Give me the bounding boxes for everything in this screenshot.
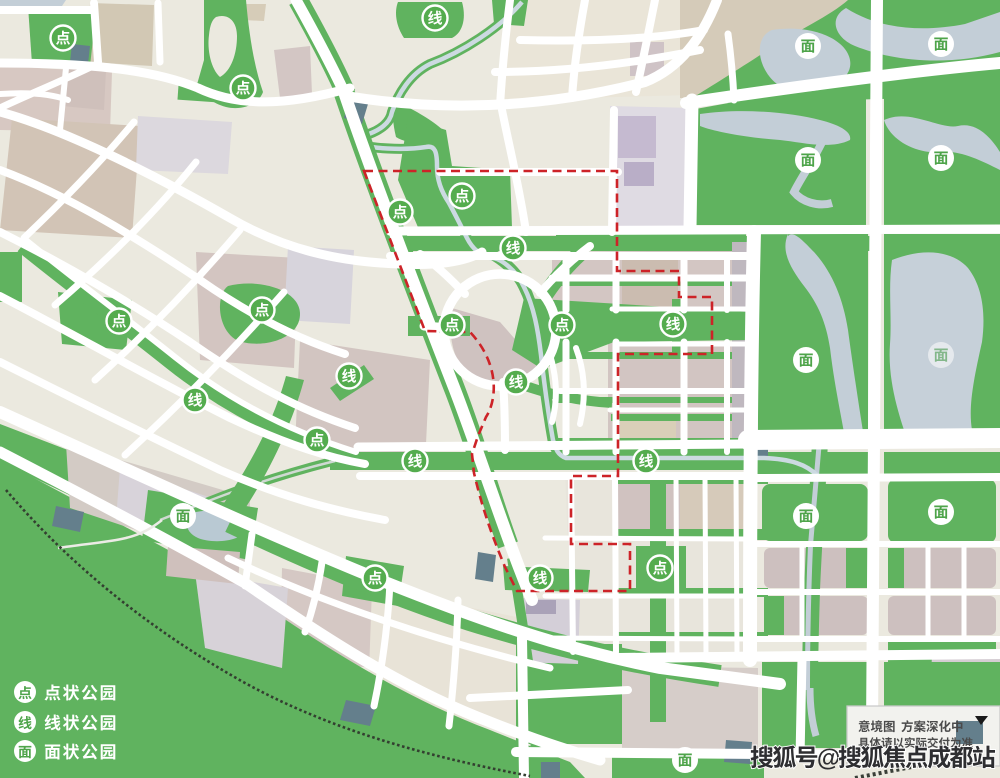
svg-text:@: @ bbox=[817, 745, 840, 772]
